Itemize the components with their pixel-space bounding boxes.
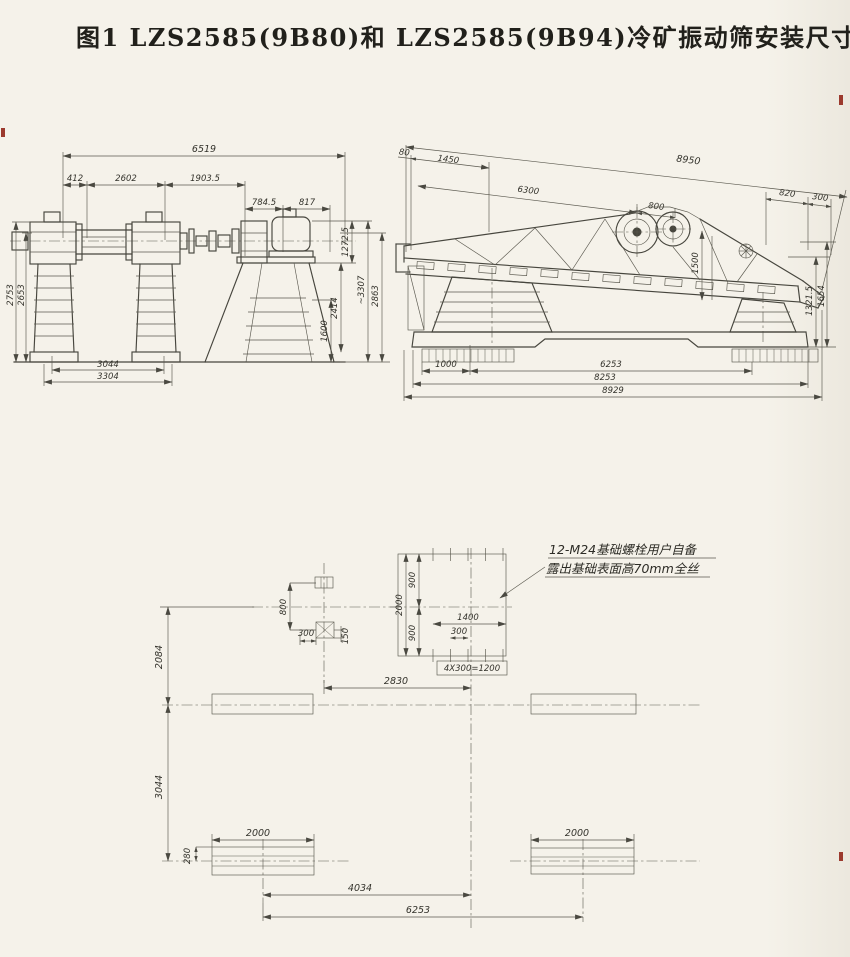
dim-2863: 2863 [371, 285, 381, 307]
dim-412: 412 [67, 174, 83, 184]
dim-300-spacing: 300 [451, 627, 467, 637]
dim-1000: 1000 [435, 360, 457, 370]
drawing-sheet: 图1 LZS2585(9B80)和 LZS2585(9B94)冷矿振动筛安装尺寸… [0, 0, 850, 957]
dim-2602: 2602 [115, 174, 137, 184]
dim-3044: 3044 [97, 360, 119, 370]
left-view-top-dimensions: 6519 412 2602 1903.5 784.5 817 [63, 144, 345, 209]
dim-4034: 4034 [348, 883, 372, 894]
left-elevation-view: 6519 412 2602 1903.5 784.5 817 [6, 144, 390, 386]
dim-8929: 8929 [602, 386, 624, 396]
dim-817: 817 [299, 198, 316, 208]
bottom-pad-dimensions: 2000 2000 280 [183, 828, 634, 864]
dim-1500: 1500 [691, 252, 701, 274]
dim-1654: 1654 [817, 285, 827, 307]
plan-bottom-dimensions: 4034 6253 [263, 883, 583, 921]
dim-plan-800: 800 [279, 599, 289, 615]
installation-drawing: 图1 LZS2585(9B80)和 LZS2585(9B94)冷矿振动筛安装尺寸… [0, 0, 850, 957]
dim-2653: 2653 [17, 284, 27, 306]
dim-900-top: 900 [408, 572, 418, 588]
dim-2000-left: 2000 [246, 828, 270, 839]
dim-8950: 8950 [676, 154, 701, 168]
deck-holes [417, 261, 775, 293]
dim-6300: 6300 [517, 185, 540, 198]
dim-2084: 2084 [154, 645, 165, 669]
dim-2000-right: 2000 [565, 828, 589, 839]
dim-4x300: 4X300=1200 [444, 664, 500, 674]
anchor-bolt-note: 12-M24基础螺栓用户自备 露出基础表面高70mm全丝 [500, 542, 716, 598]
dim-plan-150: 150 [341, 628, 351, 644]
strip-footing-right [732, 349, 818, 362]
dim-8253: 8253 [594, 373, 616, 383]
left-view-bottom-dimensions: 3044 3304 [44, 356, 172, 386]
dim-6253-elev: 6253 [600, 360, 622, 370]
dim-1321-5: 1321.5 [805, 286, 815, 316]
foundation-plan-view: 800 300 150 2000 900 900 1400 300 4X300 [154, 542, 716, 928]
dim-6519: 6519 [192, 144, 216, 155]
dim-2753: 2753 [6, 284, 16, 306]
bolt-pad: 2000 900 900 1400 300 4X300=1200 [390, 548, 512, 675]
dim-820: 820 [779, 188, 796, 200]
right-view-bottom-dimensions: 1000 6253 8253 8929 [404, 310, 822, 401]
dim-2830: 2830 [384, 676, 408, 687]
dim-300: 300 [812, 192, 829, 204]
left-view-machine-body [10, 209, 356, 362]
supports-and-foundation [408, 266, 818, 362]
dim-1400: 1400 [457, 613, 479, 623]
dim-plan-300: 300 [298, 629, 314, 639]
dim-2830-group: 2830 [324, 676, 471, 694]
right-elevation-view: 80 1450 8950 6300 800 820 300 [396, 145, 847, 401]
dim-1600: 1600 [320, 320, 330, 342]
middle-row-pads [212, 694, 636, 714]
dim-3307: ~3307 [357, 275, 367, 304]
bolt-rosette-icon [739, 244, 753, 258]
note-line-1: 12-M24基础螺栓用户自备 [549, 542, 698, 557]
dim-3304: 3304 [97, 372, 119, 382]
bottom-row-pads [162, 839, 700, 922]
small-anchor-pads: 800 300 150 [252, 563, 398, 683]
left-view-right-dimensions: 1272.5 2414 1600 ~3307 2863 [312, 221, 390, 362]
dim-plan-3044: 3044 [154, 775, 165, 799]
dim-pad-2000: 2000 [395, 594, 405, 616]
plan-left-dimension-chain: 2084 3044 [154, 607, 254, 861]
dim-2414: 2414 [330, 297, 340, 319]
dim-plan-6253: 6253 [406, 905, 430, 916]
dim-280: 280 [183, 848, 193, 864]
dim-900-bottom: 900 [408, 625, 418, 641]
note-line-2: 露出基础表面高70mm全丝 [546, 561, 700, 576]
screen-body [396, 207, 824, 308]
dim-80: 80 [398, 147, 410, 158]
figure-title: 图1 LZS2585(9B80)和 LZS2585(9B94)冷矿振动筛安装尺寸 [76, 23, 850, 52]
scan-marks [1, 95, 843, 861]
dim-1903-5: 1903.5 [190, 174, 220, 184]
dim-1272-5: 1272.5 [341, 227, 351, 257]
dim-1450: 1450 [437, 154, 460, 167]
dim-784-5: 784.5 [252, 198, 276, 208]
